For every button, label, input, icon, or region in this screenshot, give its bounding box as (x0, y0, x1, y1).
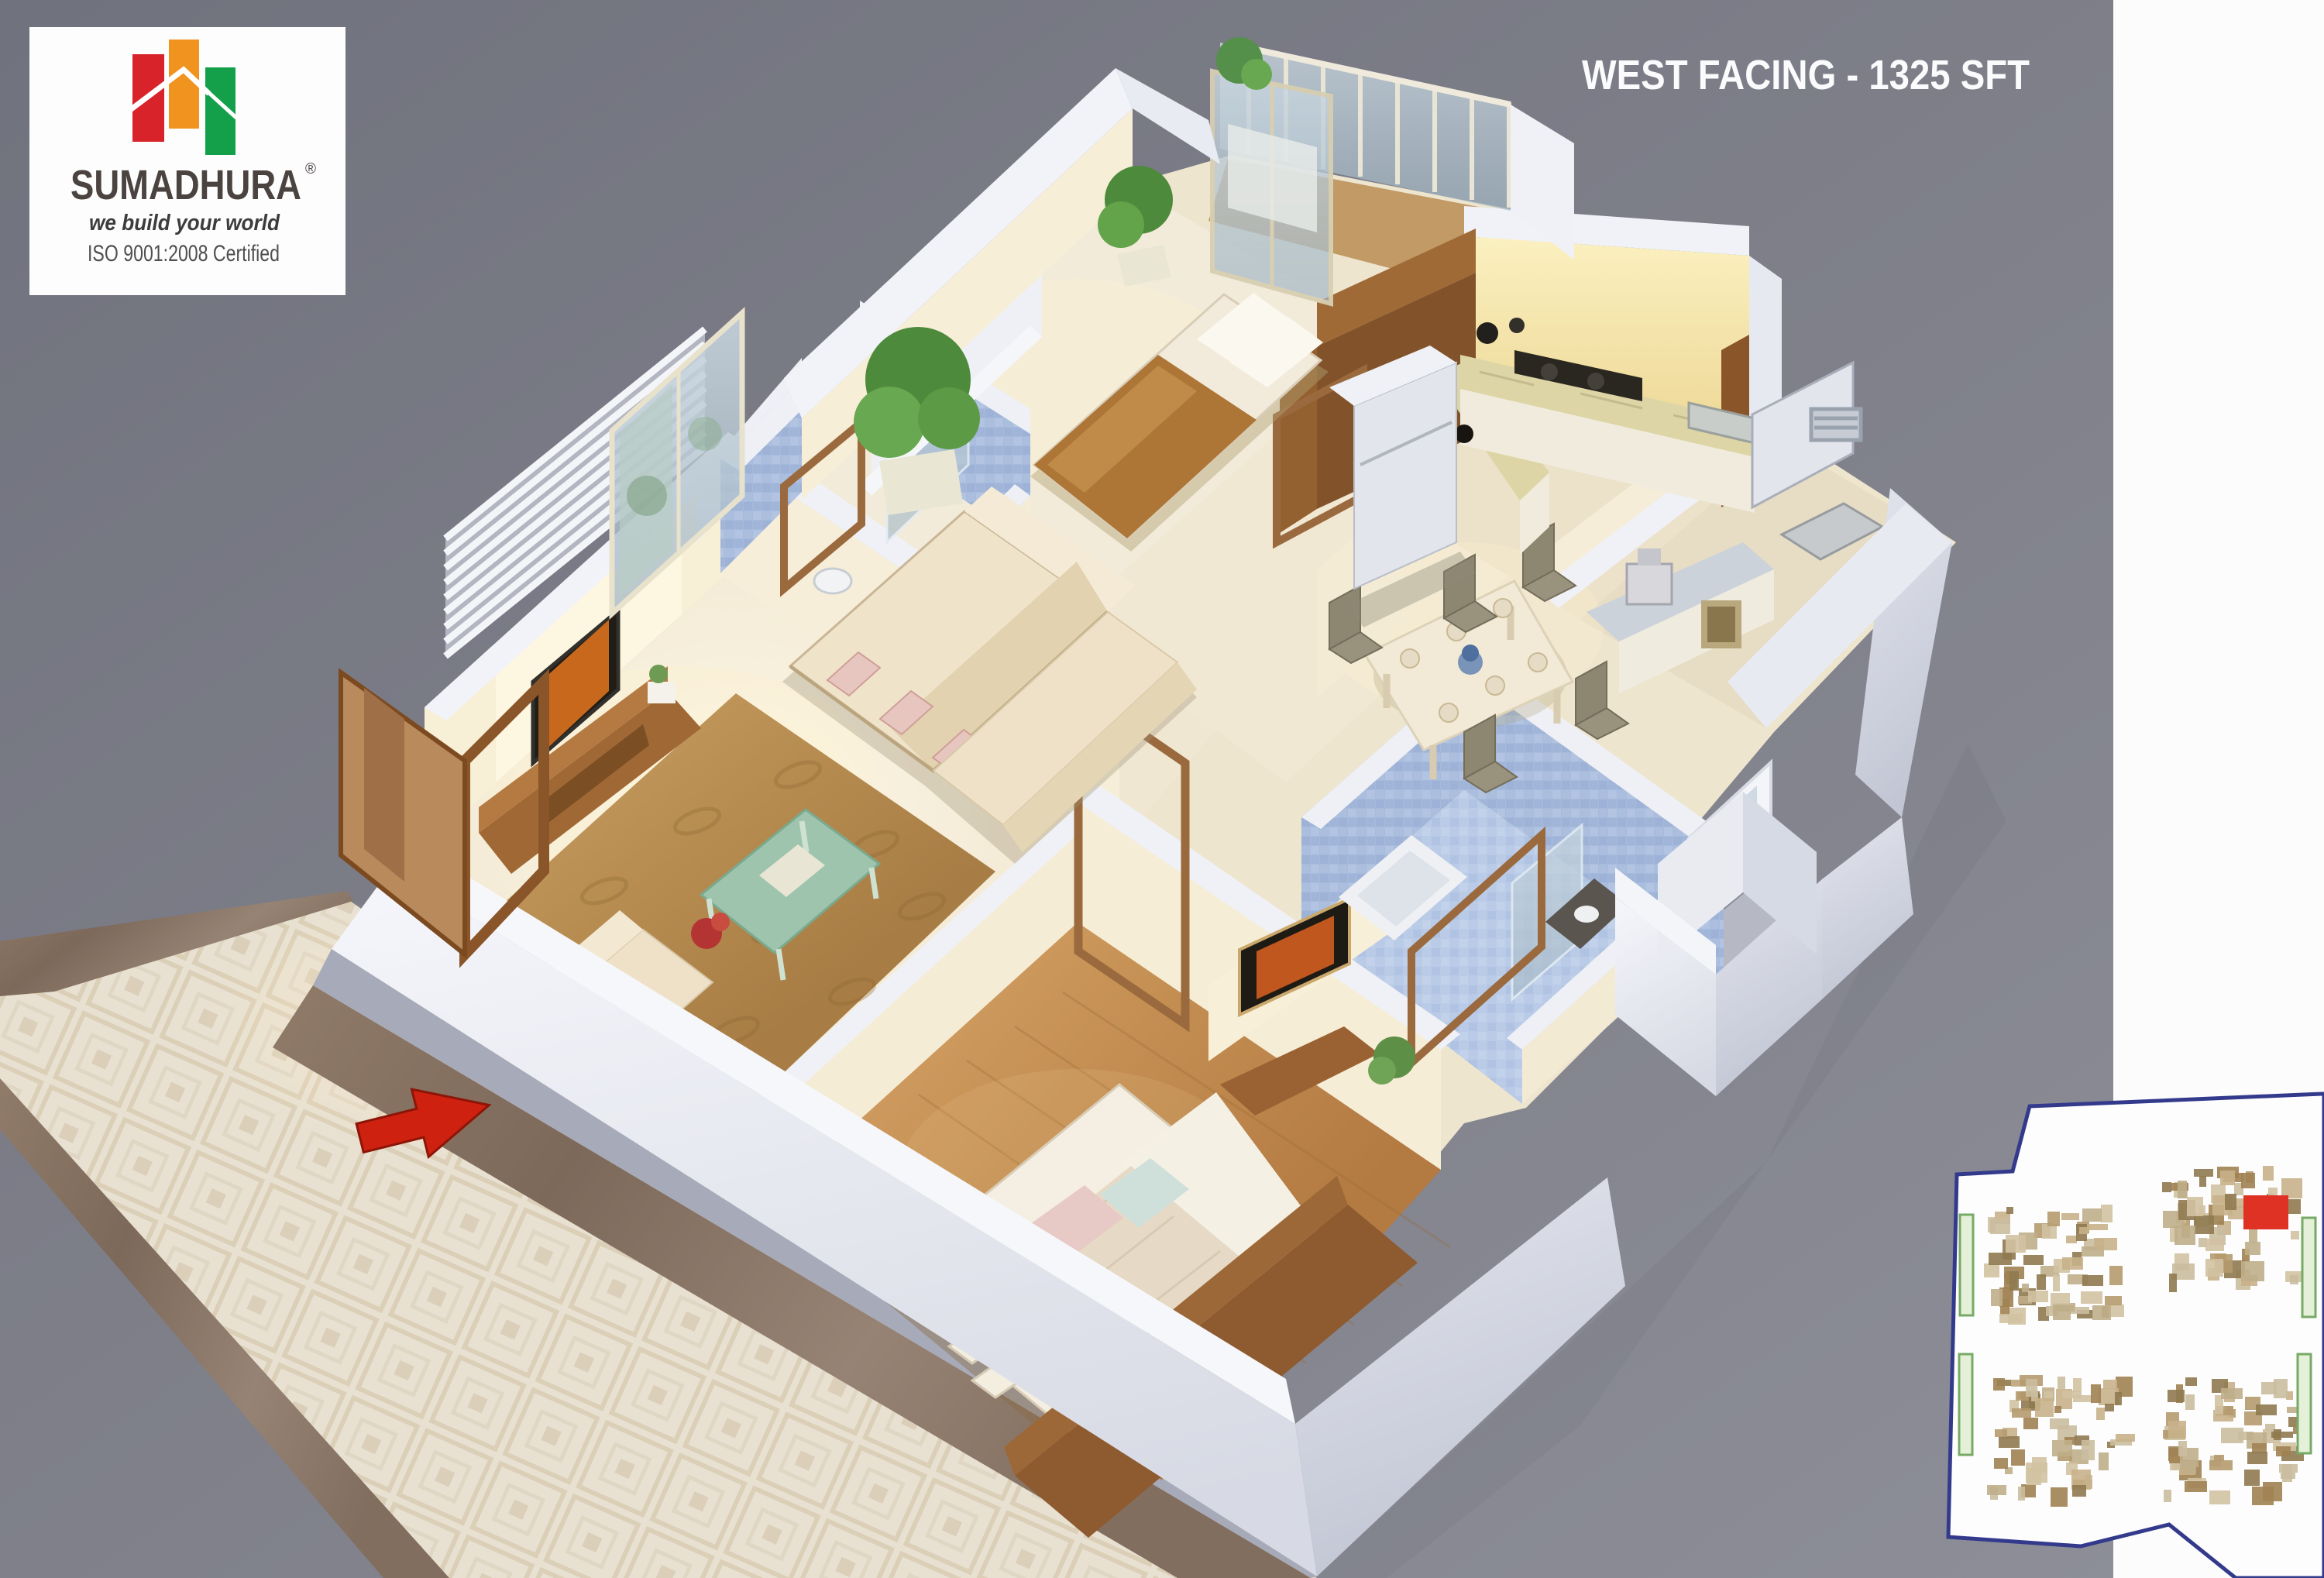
svg-text:SUMADHURA: SUMADHURA (70, 162, 301, 208)
svg-text:®: ® (305, 161, 316, 177)
svg-text:ISO 9001:2008 Certified: ISO 9001:2008 Certified (88, 241, 280, 266)
svg-text:we build your world: we build your world (89, 211, 280, 235)
svg-text:WEST FACING - 1325 SFT: WEST FACING - 1325 SFT (1582, 52, 2030, 98)
